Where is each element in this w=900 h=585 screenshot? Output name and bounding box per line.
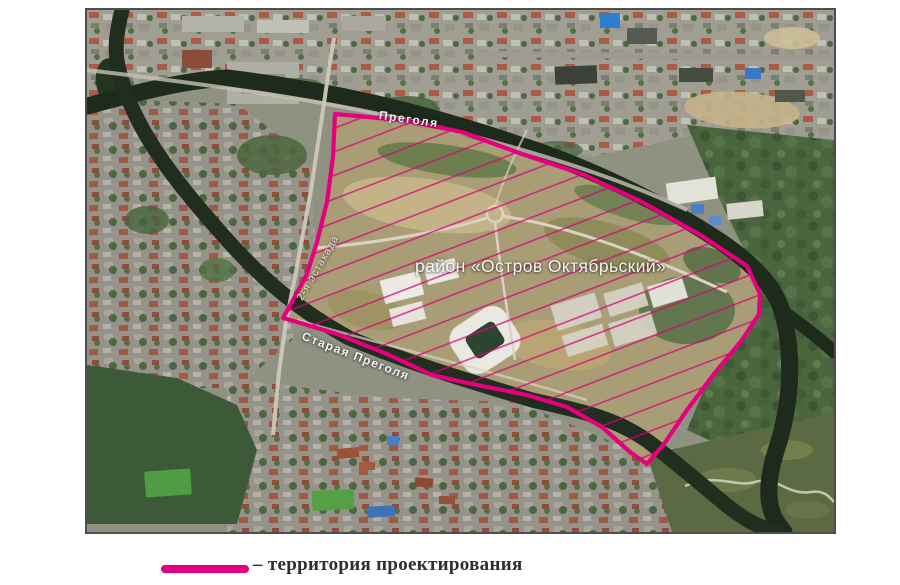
legend-label: – территория проектирования <box>253 554 523 576</box>
document-page: район «Остров Октябрьский» Преголя Стара… <box>0 0 900 585</box>
legend-line-swatch <box>161 565 249 573</box>
satellite-map-figure: район «Остров Октябрьский» Преголя Стара… <box>85 8 836 534</box>
area-label: район «Остров Октябрьский» <box>415 256 666 277</box>
legend: – территория проектирования <box>0 556 900 585</box>
